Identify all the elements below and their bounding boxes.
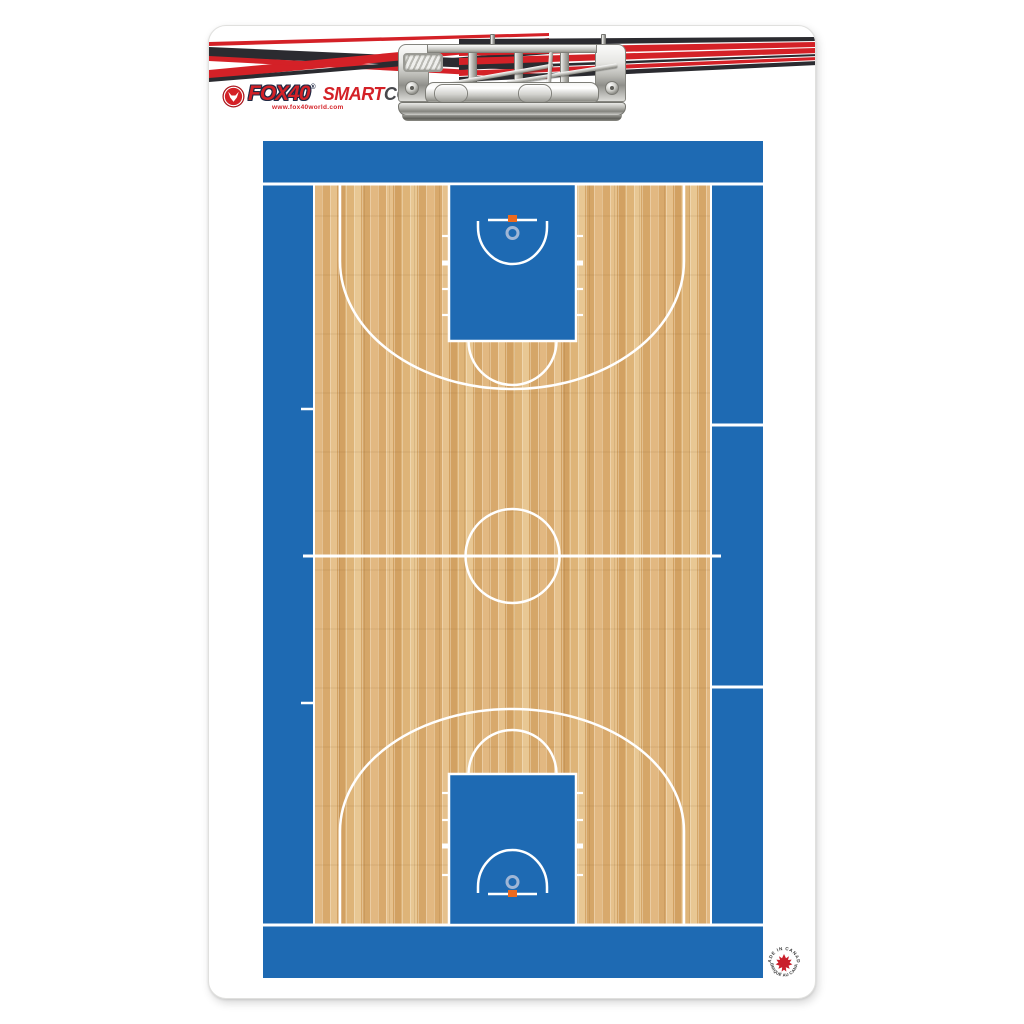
- free-throw-circle-top: [469, 341, 557, 385]
- court-markings: [263, 141, 763, 978]
- clip-screw-right: [605, 81, 619, 95]
- rim-mount-top: [508, 215, 517, 222]
- clip-screw-left: [405, 81, 419, 95]
- rim-mount-bottom: [508, 890, 517, 897]
- clipboard-board: FOX40 ® SMART COACH ™ www.fox40world.com: [208, 25, 816, 999]
- painted-key-top: [449, 184, 576, 341]
- brand-name-text: FOX40: [248, 82, 310, 106]
- clip-spring-clamp-left: [434, 84, 468, 103]
- clip-top-rail: [427, 44, 597, 53]
- clip-base: [398, 102, 626, 116]
- smart-text: SMART: [323, 84, 384, 105]
- registered-mark: ®: [311, 84, 316, 91]
- clip-spring-clamp-right: [518, 84, 552, 103]
- free-throw-circle-bottom: [469, 730, 557, 774]
- clip-embossed-stamp: [403, 53, 443, 72]
- clip-base-shadow-edge: [402, 115, 622, 121]
- clip-wire-lever: [547, 52, 553, 86]
- basketball-court-diagram: [263, 141, 763, 978]
- product-photo-stage: FOX40 ® SMART COACH ™ www.fox40world.com: [0, 0, 1024, 1024]
- clip-post: [560, 52, 569, 86]
- clipboard-metal-clip: [398, 44, 626, 122]
- made-in-canada-badge: MADE IN CANADA FABRIQUÉ AU CANADA: [764, 943, 804, 983]
- fox40-emblem-icon: [222, 85, 245, 108]
